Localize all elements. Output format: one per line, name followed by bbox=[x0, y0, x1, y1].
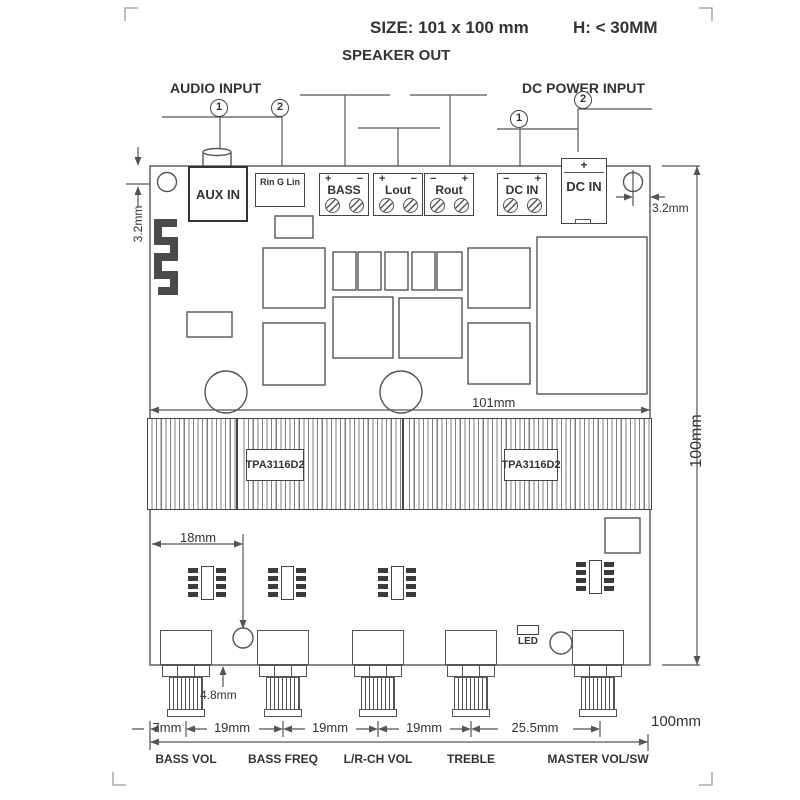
pot-nut bbox=[354, 665, 402, 677]
pot-shaft bbox=[454, 677, 488, 710]
jack-notch bbox=[575, 219, 591, 224]
pot-rim bbox=[167, 709, 205, 717]
left-speaker-terminal: +− Lout bbox=[373, 173, 423, 216]
size-label: SIZE: 101 x 100 mm bbox=[370, 18, 529, 38]
treble-pot bbox=[445, 630, 497, 718]
pot-shaft bbox=[266, 677, 300, 710]
terminal-label: Lout bbox=[374, 184, 422, 196]
height-label: H: < 30MM bbox=[573, 18, 658, 38]
chip-pads bbox=[378, 568, 388, 598]
chip-body bbox=[281, 566, 294, 600]
chip-pads bbox=[216, 568, 226, 598]
bass-freq-pot bbox=[257, 630, 309, 718]
pot-nut bbox=[259, 665, 307, 677]
audio-callout-2-icon: 2 bbox=[271, 99, 289, 117]
dim-board-height: 100mm bbox=[688, 411, 706, 471]
dc-screw-terminal: −+ DC IN bbox=[497, 173, 547, 216]
master-vol-pot bbox=[572, 630, 624, 718]
chip-pads bbox=[406, 568, 416, 598]
bass-vol-pot bbox=[160, 630, 212, 718]
heatsink: TPA3116D2 TPA3116D2 bbox=[147, 418, 652, 510]
screw-icon bbox=[527, 198, 542, 213]
audio-callout-1-icon: 1 bbox=[210, 99, 228, 117]
pot-shaft bbox=[169, 677, 203, 710]
amp-chip-left: TPA3116D2 bbox=[246, 449, 304, 481]
screw-icon bbox=[503, 198, 518, 213]
capacitor-left bbox=[205, 371, 247, 413]
control-label-master-vol-sw: MASTER VOL/SW bbox=[547, 752, 648, 766]
heatsink-divider bbox=[402, 419, 406, 509]
soic-chip bbox=[267, 566, 307, 600]
lr-ch-vol-pot bbox=[352, 630, 404, 718]
screw-icon bbox=[379, 198, 394, 213]
dim-board-width: 101mm bbox=[472, 395, 515, 410]
chip-pads bbox=[604, 562, 614, 592]
dim-spacing-25.5mm: 25.5mm bbox=[512, 720, 559, 735]
dim-pot-offset-x: 18mm bbox=[180, 530, 216, 545]
power-switch-circle bbox=[550, 632, 572, 654]
screw-icon bbox=[325, 198, 340, 213]
dim-overall-width: 100mm bbox=[651, 713, 701, 730]
line-in-header: Rin G Lin bbox=[255, 173, 305, 207]
pot-nut bbox=[162, 665, 210, 677]
dc-callout-1-icon: 1 bbox=[510, 110, 528, 128]
dim-spacing-19mm: 19mm bbox=[214, 720, 250, 735]
pot-body bbox=[352, 630, 404, 665]
pot-shaft bbox=[581, 677, 615, 710]
pot-body bbox=[572, 630, 624, 665]
pot-nut bbox=[574, 665, 622, 677]
trimmer-circle bbox=[233, 628, 253, 648]
screw-icon bbox=[349, 198, 364, 213]
control-label-treble: TREBLE bbox=[447, 752, 495, 766]
minus-sign: − bbox=[411, 175, 417, 184]
pot-body bbox=[160, 630, 212, 665]
chip-pads bbox=[188, 568, 198, 598]
line-in-label: Rin G Lin bbox=[260, 177, 300, 187]
pot-body bbox=[445, 630, 497, 665]
aux-in-jack: AUX IN bbox=[188, 166, 248, 222]
bluetooth-antenna bbox=[158, 223, 177, 291]
bass-speaker-terminal: +− BASS bbox=[319, 173, 369, 216]
dim-pot-offset-y: 4.8mm bbox=[200, 688, 237, 702]
soic-chip bbox=[575, 560, 615, 594]
dim-hole-offset-left: 3.2mm bbox=[131, 202, 145, 246]
chip-body bbox=[589, 560, 602, 594]
screw-icon bbox=[430, 198, 445, 213]
speaker-out-label: SPEAKER OUT bbox=[342, 47, 450, 64]
pot-rim bbox=[452, 709, 490, 717]
led-indicator bbox=[517, 625, 539, 635]
capacitor-right bbox=[380, 371, 422, 413]
screw-icon bbox=[403, 198, 418, 213]
pot-nut bbox=[447, 665, 495, 677]
terminal-label: BASS bbox=[320, 184, 368, 196]
dc-barrel-jack: + DC IN bbox=[561, 158, 607, 224]
pot-body bbox=[257, 630, 309, 665]
pot-rim bbox=[359, 709, 397, 717]
terminal-label: DC IN bbox=[498, 184, 546, 196]
jack-divider bbox=[564, 172, 604, 173]
pot-shaft bbox=[361, 677, 395, 710]
audio-input-label: AUDIO INPUT bbox=[170, 80, 261, 96]
chip-pads bbox=[296, 568, 306, 598]
dim-spacing-19mm: 19mm bbox=[312, 720, 348, 735]
control-label-bass-freq: BASS FREQ bbox=[248, 752, 318, 766]
terminal-label: Rout bbox=[425, 184, 473, 196]
heatsink-divider bbox=[236, 419, 240, 509]
soic-chip bbox=[187, 566, 227, 600]
dc-jack-label: DC IN bbox=[562, 179, 606, 194]
chip-pads bbox=[576, 562, 586, 592]
pot-rim bbox=[264, 709, 302, 717]
control-label-lr-ch-vol: L/R-CH VOL bbox=[344, 752, 413, 766]
aux-in-label: AUX IN bbox=[196, 187, 240, 202]
control-label-bass-vol: BASS VOL bbox=[155, 752, 216, 766]
aux-jack-barrel bbox=[203, 149, 231, 167]
dim-spacing-19mm: 19mm bbox=[406, 720, 442, 735]
dim-spacing-7mm: 7mm bbox=[153, 720, 182, 735]
amplifier-board-dimension-diagram: SIZE: 101 x 100 mm H: < 30MM SPEAKER OUT… bbox=[0, 0, 800, 800]
pot-rim bbox=[579, 709, 617, 717]
dc-callout-2-icon: 2 bbox=[574, 91, 592, 109]
dim-hole-offset-right: 3.2mm bbox=[652, 201, 689, 215]
plus-sign: + bbox=[562, 159, 606, 172]
chip-body bbox=[391, 566, 404, 600]
mounting-hole-left bbox=[158, 173, 177, 192]
chip-pads bbox=[268, 568, 278, 598]
chip-body bbox=[201, 566, 214, 600]
right-speaker-terminal: −+ Rout bbox=[424, 173, 474, 216]
soic-chip bbox=[377, 566, 417, 600]
amp-chip-right: TPA3116D2 bbox=[504, 449, 558, 481]
screw-icon bbox=[454, 198, 469, 213]
